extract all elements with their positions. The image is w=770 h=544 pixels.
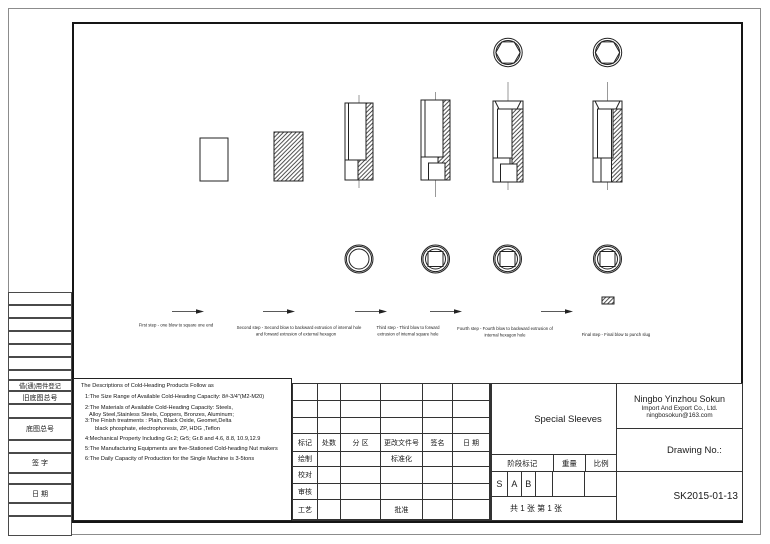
row-label-process: 工艺 [293,500,318,520]
table-cell [381,467,423,484]
description-line: 5:The Manufacturing Equipments are five-… [85,446,278,452]
weight-label: 重量 [554,455,587,471]
row-label-drawn: 绘制 [293,452,318,467]
description-line: 3:The Finish treatments : Plain, Black O… [85,418,231,424]
description-line: 1:The Size Range of Available Cold-Headi… [85,394,264,400]
step1-caption: First step - one blow to square one end [139,323,214,328]
figure-first-step [274,132,303,181]
figure-blank [200,138,228,181]
table-cell [318,401,341,418]
weight-value [553,472,586,496]
table-cell [453,401,490,418]
table-cell [318,418,341,434]
table-cell [341,452,381,467]
strip-cell-empty [8,331,72,344]
step3-caption-line2: extrusion of internal square hole [377,332,439,337]
row-label-checked: 校对 [293,467,318,484]
header-change-doc-no: 更改文件号 [381,434,423,452]
table-cell [423,384,453,401]
company-info: Ningbo Yinzhou Sokun Import And Export C… [617,384,742,429]
bottom-view-fourth-step [494,245,522,273]
table-cell [318,500,341,520]
table-cell [341,467,381,484]
company-name: Ningbo Yinzhou Sokun [634,394,725,404]
strip-cell-empty [8,404,72,418]
scale-value [585,472,616,496]
step2-caption-line2: and forward extrusion of external hexago… [256,332,337,337]
step4-caption-line2: internal hexagon hole [484,333,526,338]
header-date: 日 期 [453,434,490,452]
strip-cell-empty [8,440,72,453]
stage-header-row: 阶段标记 重量 比例 [492,455,616,472]
strip-label-signature: 签 字 [8,453,72,473]
table-cell [453,500,490,520]
product-descriptions-box: The Descriptions of Cold-Heading Product… [73,378,292,521]
drawing-sheet: 借(通)用件登记 旧底图总号 底图总号 签 字 日 期 [0,0,770,544]
title-block-right: Ningbo Yinzhou Sokun Import And Export C… [617,384,742,520]
bottom-view-second-step [345,245,373,273]
row-label-approval: 批准 [381,500,423,520]
table-cell [381,401,423,418]
top-view-fourth-step-hex [494,38,522,66]
table-cell [318,484,341,500]
table-cell [293,384,318,401]
top-view-final-step-hex [593,38,621,66]
header-zone: 分 区 [341,434,381,452]
step5-caption: Final step - Final blow to punch slug [582,332,651,337]
title-block-left: Special Sleeves 阶段标记 重量 比例 S A B 共 1 张 第… [492,384,617,520]
table-cell [423,467,453,484]
stage-mark-label: 阶段标记 [492,455,554,471]
table-cell [423,452,453,467]
step2-caption-line1: Second step - Second blow to backward ex… [237,325,362,330]
drawing-no-value: SK2015-01-13 [617,472,742,520]
row-label-audited: 审核 [293,484,318,500]
strip-label-reuse-record: 借(通)用件登记 [8,380,72,391]
sheet-info: 共 1 张 第 1 张 [492,497,616,520]
strip-cell-empty [8,516,72,536]
table-cell [341,484,381,500]
figure-final-step [593,82,622,190]
strip-cell-empty [8,473,72,484]
step-arrows [172,309,573,314]
table-cell [341,500,381,520]
scale-label: 比例 [586,455,616,471]
bottom-view-third-step [422,245,450,273]
cold-heading-process-drawing: First step - one blow to square one end … [72,22,743,378]
step4-caption-line1: Fourth step - Fourth blow to backward ex… [457,326,554,331]
description-line: 6:The Daily Capacity of Production for t… [85,456,254,462]
table-cell [453,484,490,500]
table-cell [293,401,318,418]
description-title: The Descriptions of Cold-Heading Product… [81,383,214,389]
strip-label-base-no: 底图总号 [8,418,72,440]
table-cell [318,467,341,484]
table-cell [293,418,318,434]
strip-cell-empty [8,318,72,331]
table-cell [341,384,381,401]
figure-third-step [421,92,450,197]
table-cell [423,401,453,418]
company-email: ningbosokun@163.com [646,412,712,419]
strip-cell-empty [8,292,72,305]
description-line: black phosphate, electrophoresis, ZP, HD… [95,426,220,432]
table-cell [453,467,490,484]
title-block: Special Sleeves 阶段标记 重量 比例 S A B 共 1 张 第… [491,383,743,521]
table-cell [318,452,341,467]
stage-mark-row: S A B [492,472,616,497]
table-cell [381,418,423,434]
table-cell [423,500,453,520]
step3-caption-line1: Third step - Third blow to forward [377,325,441,330]
table-cell [453,384,490,401]
strip-cell-empty [8,357,72,370]
row-label-standardization: 标准化 [381,452,423,467]
stage-mark-a: A [508,472,522,496]
strip-label-old-base-no: 旧底图总号 [8,391,72,404]
part-name: Special Sleeves [492,384,616,455]
strip-cell-empty [8,344,72,357]
table-cell [381,384,423,401]
company-subtitle: Import And Export Co., Ltd. [642,405,718,412]
bottom-view-final-step [594,245,622,273]
stage-mark-s: S [492,472,508,496]
revision-table: 标记 处数 分 区 更改文件号 签名 日 期 绘制 标准化 校对 审核 工艺 批… [292,383,491,521]
description-line: 4:Mechanical Property Including Gr.2; Gr… [85,436,260,442]
table-cell [453,452,490,467]
header-signature: 签名 [423,434,453,452]
table-cell [341,401,381,418]
strip-cell-empty [8,370,72,380]
stage-mark-b: B [522,472,536,496]
table-cell [423,484,453,500]
figure-fourth-step [493,82,523,190]
drawing-no-label: Drawing No.: [617,429,742,472]
table-cell [381,484,423,500]
table-cell [318,384,341,401]
strip-label-date: 日 期 [8,484,72,503]
table-cell [423,418,453,434]
header-count: 处数 [318,434,341,452]
punch-slug [602,297,614,304]
table-cell [453,418,490,434]
figure-second-step [345,95,373,188]
strip-cell-empty [8,305,72,318]
table-cell [536,472,553,496]
table-cell [341,418,381,434]
header-mark: 标记 [293,434,318,452]
strip-cell-empty [8,503,72,516]
description-line: 2:The Materials of Available Cold-Headin… [85,405,233,411]
